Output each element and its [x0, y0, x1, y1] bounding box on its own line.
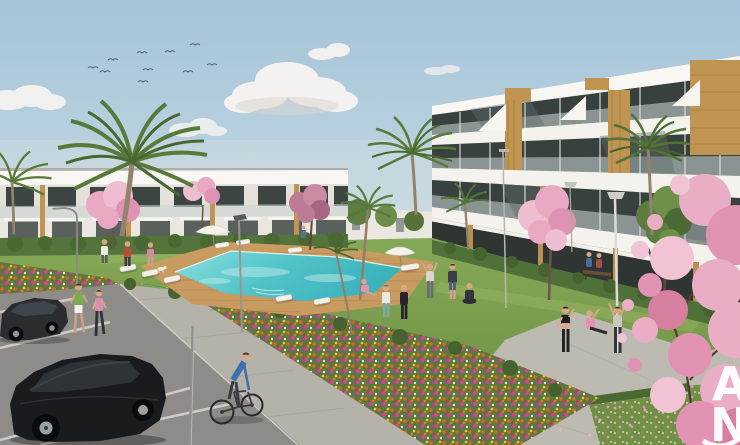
- person: [301, 226, 306, 239]
- person: [586, 252, 592, 267]
- person: [596, 253, 602, 268]
- watermark-letter-bottom: N: [710, 398, 740, 445]
- property-render-image: A N: [0, 0, 740, 445]
